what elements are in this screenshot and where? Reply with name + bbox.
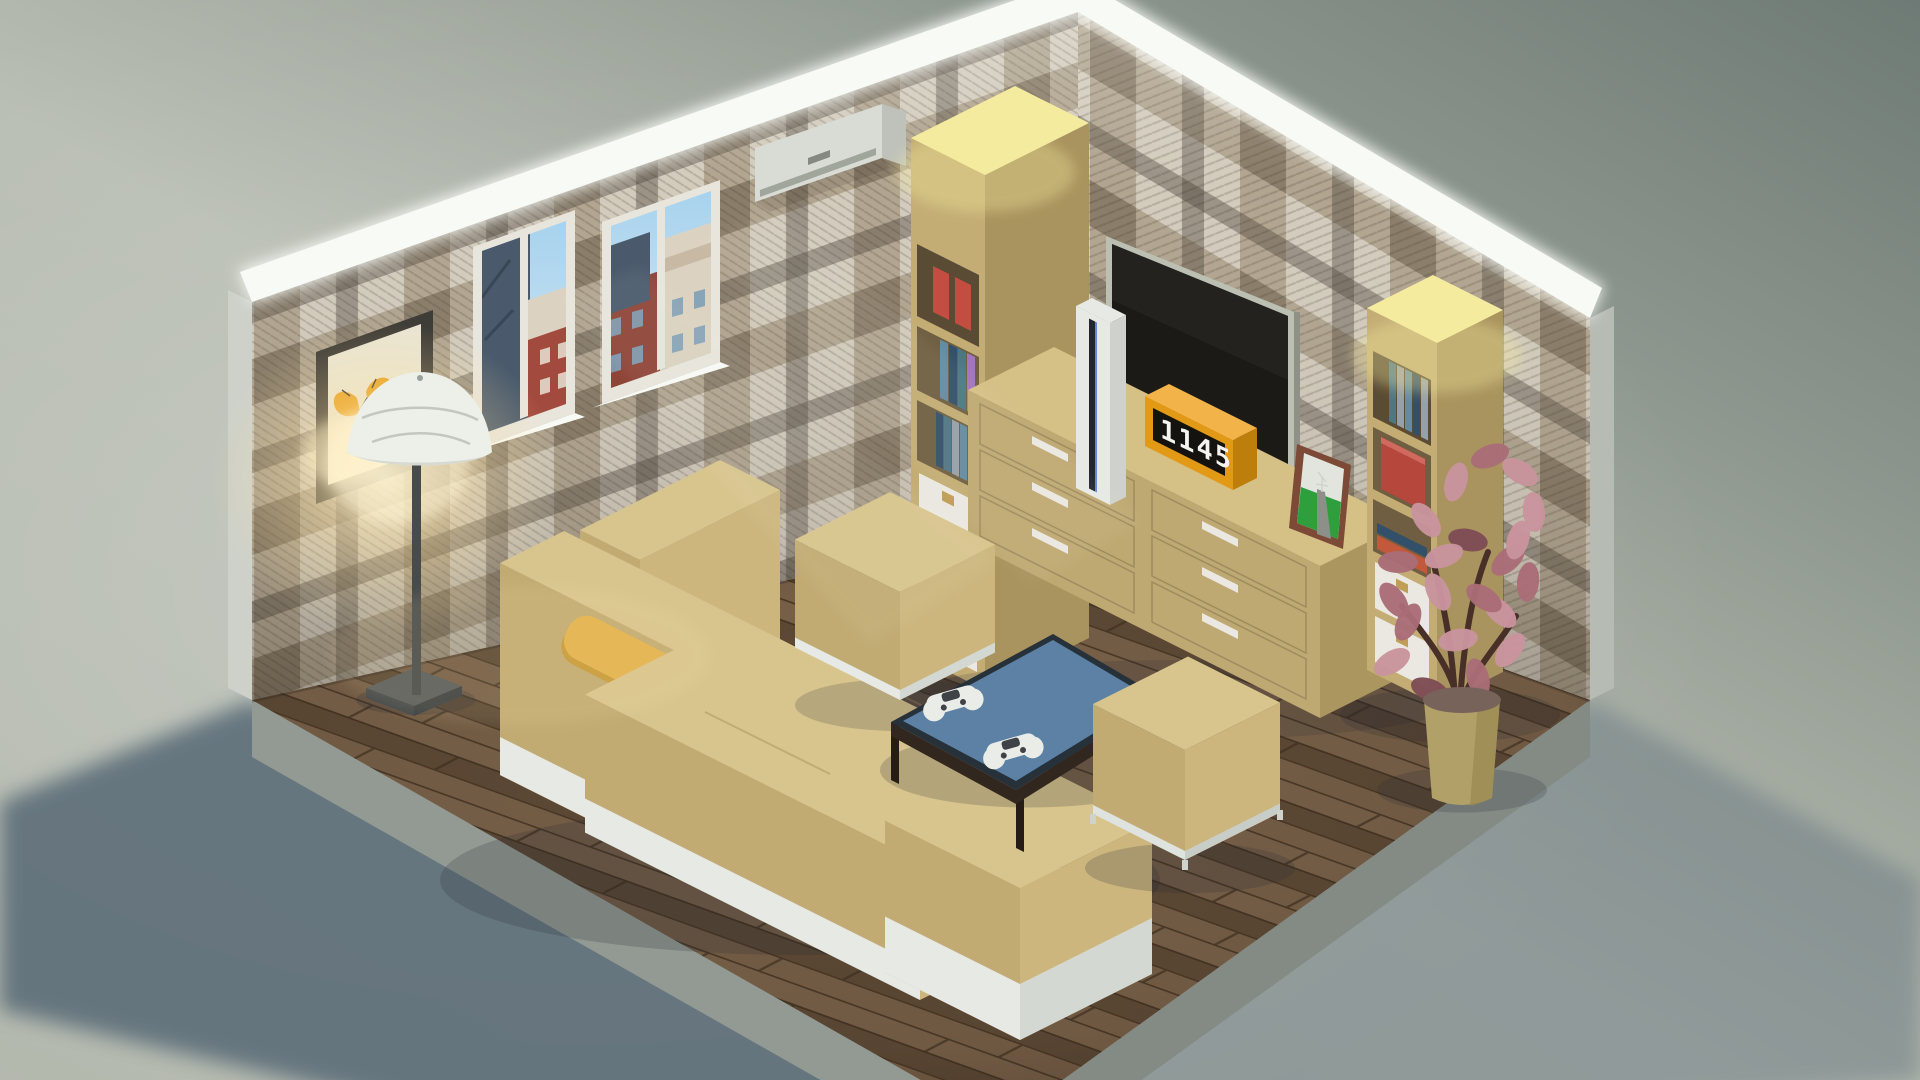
red-cup bbox=[933, 266, 949, 320]
top-glow bbox=[895, 132, 1075, 212]
isometric-living-room-scene: 1145 bbox=[0, 0, 1920, 1080]
shade-cap bbox=[417, 375, 423, 381]
red-cup bbox=[955, 277, 971, 331]
pouf-foot bbox=[1277, 810, 1283, 820]
top-glow bbox=[1352, 317, 1522, 393]
leaf bbox=[1378, 551, 1418, 573]
console-light bbox=[1095, 322, 1097, 493]
pot-soil bbox=[1423, 687, 1501, 713]
city-window bbox=[694, 289, 705, 309]
city-window bbox=[540, 347, 550, 365]
right-wall-endcap bbox=[1590, 306, 1614, 700]
floor-light-pool bbox=[330, 585, 710, 725]
console-stripe bbox=[1089, 319, 1095, 492]
city-window bbox=[540, 377, 550, 395]
game-console-side bbox=[1110, 315, 1126, 505]
pouf-foot bbox=[1090, 814, 1096, 824]
pouf-foot bbox=[1182, 860, 1188, 870]
